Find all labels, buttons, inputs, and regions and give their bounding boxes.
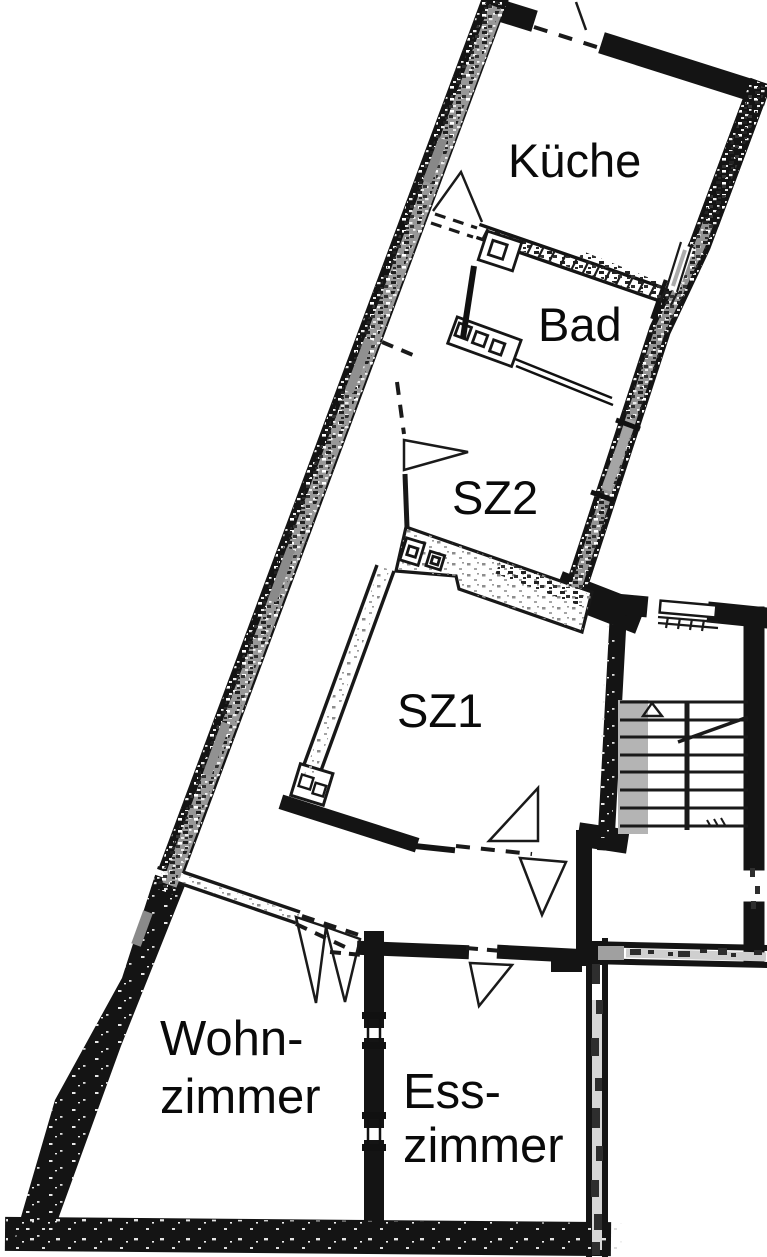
- svg-text:Wohn-: Wohn-: [160, 1012, 303, 1066]
- svg-text:Ess-: Ess-: [403, 1065, 501, 1119]
- svg-text:zimmer: zimmer: [160, 1070, 321, 1124]
- svg-text:SZ1: SZ1: [397, 684, 483, 737]
- svg-text:zimmer: zimmer: [403, 1119, 564, 1173]
- svg-text:Küche: Küche: [508, 134, 641, 187]
- svg-text:SZ2: SZ2: [452, 471, 538, 524]
- svg-text:Bad: Bad: [538, 298, 622, 351]
